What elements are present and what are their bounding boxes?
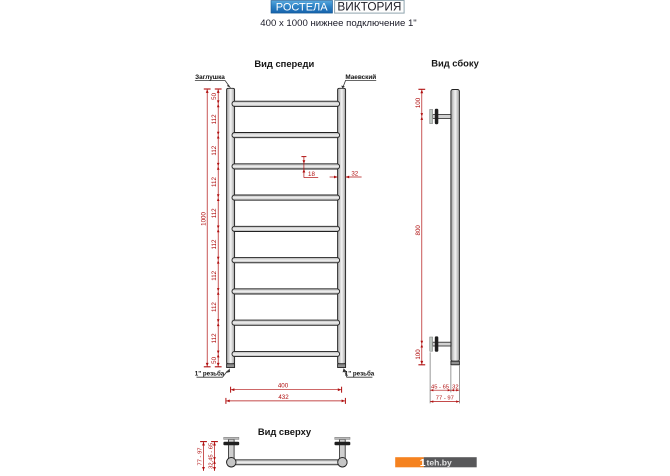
svg-text:teh.by: teh.by	[427, 457, 453, 467]
svg-text:100: 100	[415, 97, 422, 108]
svg-text:112: 112	[211, 177, 218, 187]
svg-text:112: 112	[211, 114, 218, 124]
svg-text:ВИКТОРИЯ: ВИКТОРИЯ	[337, 0, 401, 14]
svg-text:Вид сбоку: Вид сбоку	[431, 57, 479, 68]
svg-text:50: 50	[211, 356, 218, 363]
svg-text:112: 112	[211, 208, 218, 218]
svg-text:77 - 97: 77 - 97	[198, 447, 204, 465]
svg-text:РОСТЕЛА: РОСТЕЛА	[276, 1, 329, 13]
svg-text:32: 32	[351, 170, 358, 177]
svg-text:18: 18	[308, 171, 315, 178]
svg-text:400: 400	[278, 383, 289, 390]
svg-text:Вид сверху: Вид сверху	[258, 426, 312, 437]
svg-text:Вид спереди: Вид спереди	[254, 58, 314, 69]
svg-text:77 - 97: 77 - 97	[436, 396, 454, 402]
svg-text:112: 112	[211, 239, 218, 249]
svg-text:32,45 - 65: 32,45 - 65	[209, 443, 215, 469]
svg-text:112: 112	[211, 145, 218, 155]
svg-text:32: 32	[452, 384, 458, 390]
svg-text:112: 112	[211, 333, 218, 343]
svg-text:50: 50	[211, 92, 218, 99]
svg-text:Заглушка: Заглушка	[195, 74, 225, 81]
svg-text:112: 112	[211, 302, 218, 312]
svg-text:1" резьба: 1" резьба	[195, 371, 225, 378]
svg-text:1: 1	[420, 457, 426, 469]
svg-text:Маевский: Маевский	[345, 73, 376, 81]
svg-text:400 x 1000 нижнее подключение: 400 x 1000 нижнее подключение 1"	[260, 18, 416, 29]
svg-text:800: 800	[415, 225, 422, 236]
svg-text:1000: 1000	[200, 212, 207, 226]
svg-text:45 - 65: 45 - 65	[431, 384, 449, 390]
svg-text:1" резьба: 1" резьба	[345, 371, 375, 378]
svg-text:112: 112	[211, 270, 218, 280]
svg-text:100: 100	[415, 349, 422, 360]
svg-text:432: 432	[278, 394, 289, 401]
